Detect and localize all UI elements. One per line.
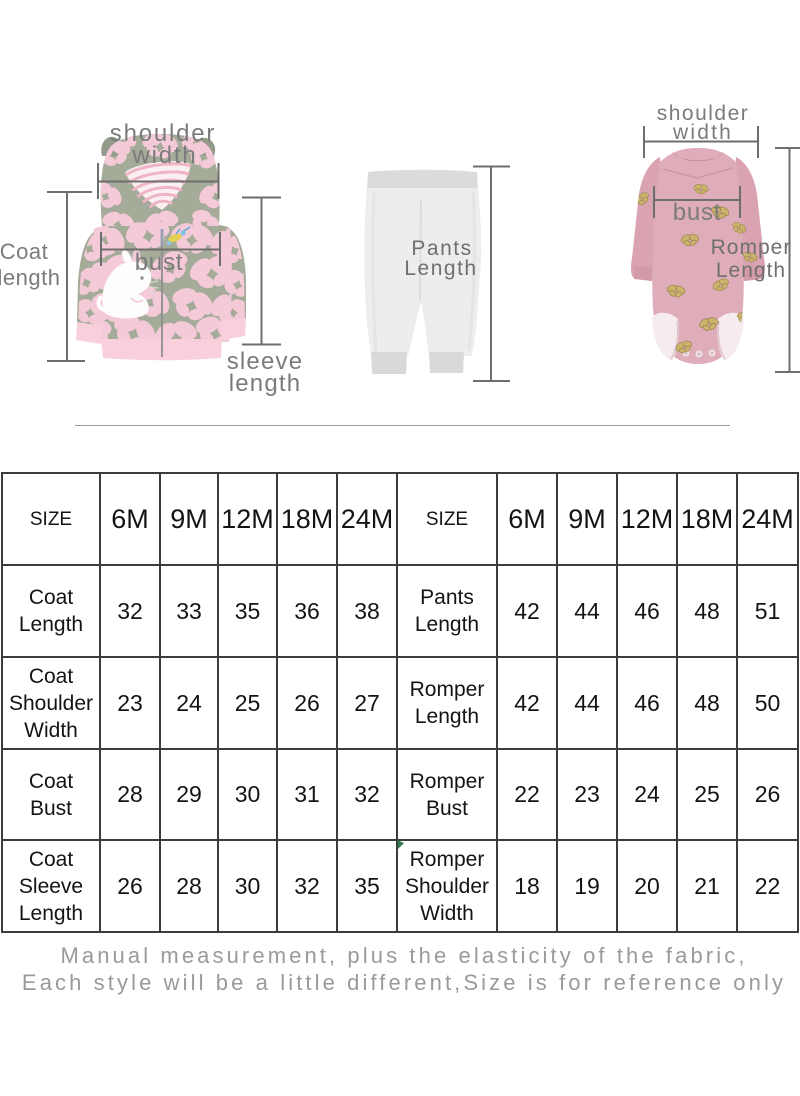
- svg-text:length: length: [0, 265, 60, 290]
- svg-text:Romper: Romper: [711, 236, 792, 259]
- svg-text:width: width: [131, 142, 197, 169]
- svg-text:Coat: Coat: [0, 239, 48, 264]
- svg-text:Length: Length: [716, 259, 786, 282]
- svg-text:Length: Length: [404, 257, 477, 280]
- svg-text:bust: bust: [673, 199, 722, 226]
- svg-text:width: width: [672, 121, 733, 144]
- svg-text:length: length: [229, 370, 302, 397]
- svg-text:bust: bust: [135, 249, 184, 276]
